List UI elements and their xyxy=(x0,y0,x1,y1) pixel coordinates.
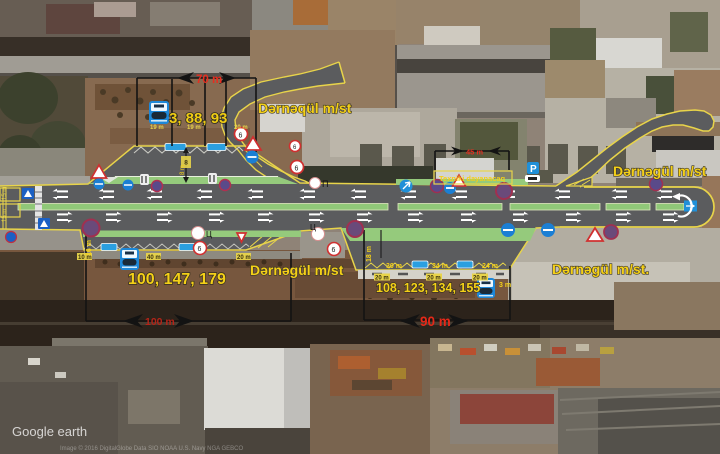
svg-text:20 m: 20 m xyxy=(427,276,441,282)
svg-text:Dərnəgül m/st.: Dərnəgül m/st. xyxy=(552,261,649,277)
svg-text:34 m: 34 m xyxy=(432,263,448,270)
svg-text:Ц: Ц xyxy=(310,223,316,232)
svg-text:90 m: 90 m xyxy=(420,314,451,329)
svg-text:20 m: 20 m xyxy=(473,276,487,282)
svg-text:24 m: 24 m xyxy=(482,263,498,270)
svg-text:15 m: 15 m xyxy=(2,209,8,222)
svg-text:Dərnəqül m/st: Dərnəqül m/st xyxy=(258,100,352,116)
svg-text:30 m: 30 m xyxy=(386,263,402,270)
svg-text:Dərnəgül m/st: Dərnəgül m/st xyxy=(613,163,707,179)
svg-text:20 m: 20 m xyxy=(237,255,251,261)
svg-text:Texniki dayanacaq: Texniki dayanacaq xyxy=(439,174,506,183)
svg-text:Dərnəgül m/st: Dərnəgül m/st xyxy=(250,262,344,278)
svg-text:Ц: Ц xyxy=(206,230,212,239)
svg-text:19 m: 19 m xyxy=(187,125,201,131)
svg-text:19 m: 19 m xyxy=(150,125,164,131)
svg-text:100, 147, 179: 100, 147, 179 xyxy=(128,271,226,288)
svg-text:40 m: 40 m xyxy=(147,255,161,261)
svg-text:18 m: 18 m xyxy=(366,246,373,262)
svg-text:Image © 2016 DigitalGlobe Da: Image © 2016 DigitalGlobe Data SIO NOAA … xyxy=(60,445,243,452)
svg-text:6: 6 xyxy=(295,166,299,173)
svg-text:Π: Π xyxy=(322,179,329,189)
svg-text:20 m: 20 m xyxy=(375,276,389,282)
svg-text:8 m: 8 m xyxy=(180,165,186,175)
svg-text:15 m: 15 m xyxy=(2,187,8,200)
svg-text:3 m: 3 m xyxy=(499,282,511,289)
svg-text:6: 6 xyxy=(239,133,243,140)
svg-text:20 m: 20 m xyxy=(234,125,248,131)
svg-text:Google earth: Google earth xyxy=(12,424,87,439)
svg-text:100 m: 100 m xyxy=(145,316,175,328)
svg-text:70 m: 70 m xyxy=(196,74,222,86)
svg-text:108, 123, 134, 155: 108, 123, 134, 155 xyxy=(376,281,480,295)
svg-text:P: P xyxy=(530,164,537,175)
svg-text:6: 6 xyxy=(198,246,202,253)
svg-text:16 m: 16 m xyxy=(86,240,93,256)
svg-text:45 m: 45 m xyxy=(466,148,483,157)
svg-text:6: 6 xyxy=(332,247,336,254)
